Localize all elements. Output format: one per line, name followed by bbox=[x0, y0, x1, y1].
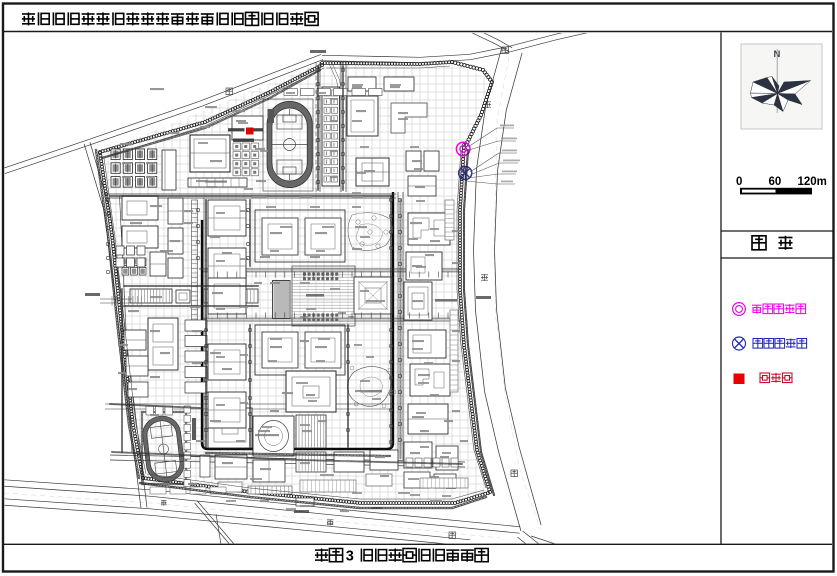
svg-text:0: 0 bbox=[736, 176, 742, 188]
svg-text:60: 60 bbox=[769, 176, 782, 188]
svg-text:3: 3 bbox=[346, 549, 354, 565]
svg-text:120m: 120m bbox=[798, 176, 827, 188]
